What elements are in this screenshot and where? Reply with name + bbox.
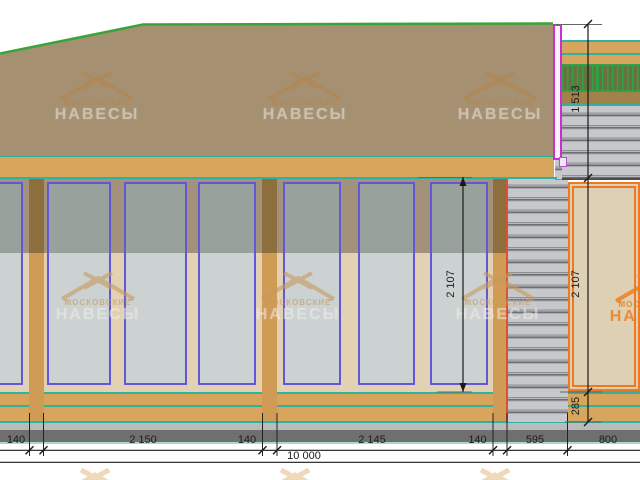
dim-label-height: 2 107: [445, 259, 457, 309]
watermark-logo: [47, 468, 143, 480]
siding-wall: [506, 178, 568, 422]
dim-label-total: 10 000: [279, 450, 329, 462]
dim-label: 800: [591, 434, 625, 446]
window-panel: [198, 182, 256, 385]
watermark-text: НАВЕСЫ: [257, 106, 353, 124]
watermark-logo: МОСКОВСКИЕ НАВЕСЫ: [257, 71, 353, 129]
plinth-light-band: [0, 423, 640, 430]
watermark-logo: [247, 468, 343, 480]
window-panel: [47, 182, 111, 385]
window-panel: [358, 182, 415, 385]
dim-label-height: 285: [570, 389, 582, 423]
mullion-post: [493, 179, 507, 421]
teal-trim-line: [0, 177, 557, 179]
window-panel: [430, 182, 488, 385]
dim-label-height: 1 513: [570, 74, 582, 124]
mullion-post: [262, 179, 277, 421]
watermark-logo: [447, 468, 543, 480]
watermark-text: МОСКОВСКИЕ: [49, 98, 145, 107]
roof-edge-notch: [559, 157, 567, 167]
watermark-text: МОСКОВСКИЕ: [257, 98, 353, 107]
teal-trim-line: [562, 53, 640, 55]
watermark-text: МОСКОВСКИЕ: [452, 98, 548, 107]
watermark-text: НАВЕСЫ: [452, 106, 548, 124]
window-panel: [283, 182, 341, 385]
window-panel: [0, 182, 23, 385]
roof-edge-strip: [553, 24, 562, 160]
canopy-icon: [57, 71, 137, 101]
dim-label: 140: [463, 434, 492, 446]
dim-label: 140: [2, 434, 30, 446]
watermark-logo: МОСКОВСКИЕ НАВЕСЫ: [49, 71, 145, 129]
watermark-logo: МОСКОВСКИЕ НАВЕСЫ: [452, 71, 548, 129]
elevation-drawing: МОСКОВСКИЕ НАВЕСЫ МОСКОВСКИЕ НАВЕСЫ МОСК…: [0, 0, 640, 480]
window-panel: [124, 182, 187, 385]
dim-label: 595: [518, 434, 552, 446]
lattice-divider: [596, 66, 599, 90]
mullion-post: [29, 179, 44, 421]
dim-label: 2 145: [342, 434, 402, 446]
dim-label: 140: [233, 434, 261, 446]
fascia-band: [0, 157, 554, 177]
dim-label: 2 150: [113, 434, 173, 446]
watermark-text: НАВЕСЫ: [49, 106, 145, 124]
dim-label-height: 2 107: [570, 259, 582, 309]
